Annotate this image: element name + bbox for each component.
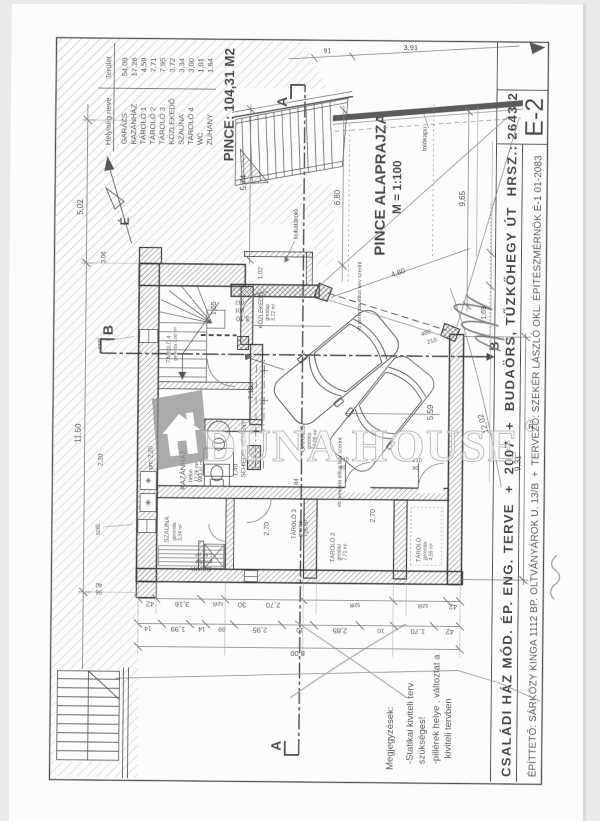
svg-text:Terület: Terület: [104, 55, 113, 79]
svg-text:5,59: 5,59: [426, 404, 435, 420]
svg-text:6,80: 6,80: [333, 189, 342, 205]
svg-text:17,26: 17,26: [130, 57, 139, 76]
svg-text:3,91: 3,91: [403, 43, 418, 52]
svg-text:14: 14: [144, 625, 152, 632]
svg-text:SZAUNA: SZAUNA: [177, 113, 186, 145]
svg-text:42: 42: [146, 600, 154, 609]
svg-text:GARÁZS: GARÁZS: [120, 113, 129, 144]
svg-text:3,16: 3,16: [175, 600, 190, 609]
svg-text:5,74: 5,74: [239, 174, 248, 190]
svg-text:PINCE ALAPRAJZA: PINCE ALAPRAJZA: [371, 114, 389, 256]
svg-text:3,00: 3,00: [187, 58, 196, 73]
svg-text:-pillérek helye , változtat a: -pillérek helye , változtat a: [431, 654, 443, 765]
svg-text:1,69: 1,69: [481, 306, 488, 320]
svg-text:4,59: 4,59: [139, 57, 148, 72]
svg-text:10: 10: [377, 627, 385, 634]
svg-text:210: 210: [235, 300, 244, 306]
svg-text:5,02: 5,02: [76, 199, 85, 215]
svg-text:vb gerenda stiius terv szerint: vb gerenda stiius terv szerint: [357, 261, 364, 332]
svg-text:54,09: 54,09: [120, 57, 129, 76]
svg-text:greslap: greslap: [195, 558, 212, 564]
svg-text:1,02: 1,02: [257, 267, 264, 280]
svg-text:1,70: 1,70: [411, 627, 426, 636]
svg-text:1,99: 1,99: [171, 625, 186, 634]
svg-text:B: B: [100, 325, 116, 335]
svg-text:2,70: 2,70: [264, 522, 271, 536]
svg-text:2,70: 2,70: [370, 509, 377, 523]
svg-text:2,70: 2,70: [266, 601, 281, 610]
svg-text:2,95: 2,95: [253, 626, 268, 635]
svg-text:tolókapu: tolókapu: [421, 126, 428, 151]
svg-text:R: R: [528, 422, 534, 431]
svg-text:PINCE: 104,31 M2: PINCE: 104,31 M2: [221, 48, 237, 161]
svg-text:14: 14: [198, 625, 206, 632]
svg-text:DUNA HOUSE: DUNA HOUSE: [203, 420, 525, 471]
svg-text:szél.: szél.: [348, 601, 361, 607]
svg-text:3,34: 3,34: [177, 58, 186, 73]
svg-text:11,50: 11,50: [74, 423, 83, 443]
svg-text:7,18: 7,18: [248, 386, 255, 400]
svg-text:szükséges!: szükséges!: [417, 717, 428, 765]
svg-text:4,59 m²: 4,59 m²: [429, 543, 435, 560]
svg-text:kukatároló: kukatároló: [293, 209, 300, 239]
svg-text:szél.: szél.: [211, 600, 224, 606]
svg-text:TÁROLÓ 2: TÁROLÓ 2: [148, 107, 157, 145]
svg-text:91: 91: [323, 48, 331, 55]
svg-text:pm. 2,20: pm. 2,20: [148, 446, 154, 470]
svg-text:3,06: 3,06: [101, 251, 107, 263]
svg-text:2,85: 2,85: [333, 626, 348, 635]
svg-text:42: 42: [446, 627, 454, 636]
svg-text:1,01: 1,01: [196, 58, 205, 73]
svg-text:3,34 m²: 3,34 m²: [178, 524, 184, 541]
svg-text:7,95 m²: 7,95 m²: [304, 520, 310, 537]
svg-text:1,64: 1,64: [206, 58, 215, 73]
svg-text:100: 100: [235, 308, 244, 314]
svg-text:96: 96: [95, 588, 102, 594]
svg-text:kiviteli tervben: kiviteli tervben: [443, 698, 455, 758]
svg-text:KÖZLEKEDŐ: KÖZLEKEDŐ: [167, 98, 176, 145]
svg-text:7,71 m²: 7,71 m²: [343, 543, 349, 560]
svg-text:szél.: szél.: [98, 336, 104, 349]
svg-text:M = 1:100: M = 1:100: [390, 160, 405, 214]
svg-text:1,55: 1,55: [211, 301, 218, 315]
svg-text:TÁROLÓ 3: TÁROLÓ 3: [158, 107, 167, 145]
svg-text:3,72: 3,72: [168, 58, 177, 73]
svg-text:A: A: [274, 97, 290, 107]
svg-text:9,65: 9,65: [458, 190, 467, 206]
svg-text:szél.: szél.: [416, 602, 429, 608]
svg-text:7,95: 7,95: [158, 58, 167, 73]
svg-text:E-2: E-2: [521, 98, 549, 137]
svg-text:89: 89: [218, 625, 226, 632]
svg-text:10: 10: [296, 626, 304, 633]
svg-text:-Statikai kiviteli terv: -Statikai kiviteli terv: [405, 682, 417, 764]
svg-text:KAZÁNHÁZ: KAZÁNHÁZ: [129, 103, 138, 144]
svg-text:ZUHANY: ZUHANY: [190, 565, 212, 571]
svg-text:30: 30: [238, 600, 246, 609]
svg-text:szél.: szél.: [96, 522, 102, 535]
svg-text:TÁROLÓ 4: TÁROLÓ 4: [186, 107, 195, 145]
svg-text:3,72 m²: 3,72 m²: [271, 303, 277, 320]
svg-text:SZAUNA: SZAUNA: [164, 516, 171, 543]
svg-text:84: 84: [294, 478, 300, 485]
svg-text:É: É: [117, 217, 132, 225]
svg-text:ZUHANY: ZUHANY: [205, 114, 214, 145]
svg-text:17,26 m²: 17,26 m²: [194, 462, 200, 482]
svg-text:2,20: 2,20: [97, 453, 104, 466]
svg-text:WC: WC: [196, 132, 205, 145]
svg-text:42: 42: [449, 602, 457, 611]
svg-text:1,64 m²: 1,64 m²: [195, 551, 213, 557]
svg-text:3,10: 3,10: [236, 314, 250, 321]
svg-text:TÁROLÓ 1: TÁROLÓ 1: [139, 107, 148, 145]
svg-text:A: A: [268, 741, 284, 751]
svg-text:40: 40: [95, 581, 102, 587]
svg-text:7,71: 7,71: [149, 58, 158, 73]
svg-text:Megjegyzések:: Megjegyzések:: [385, 706, 397, 769]
svg-text:Helyiség neve: Helyiség neve: [104, 97, 113, 145]
